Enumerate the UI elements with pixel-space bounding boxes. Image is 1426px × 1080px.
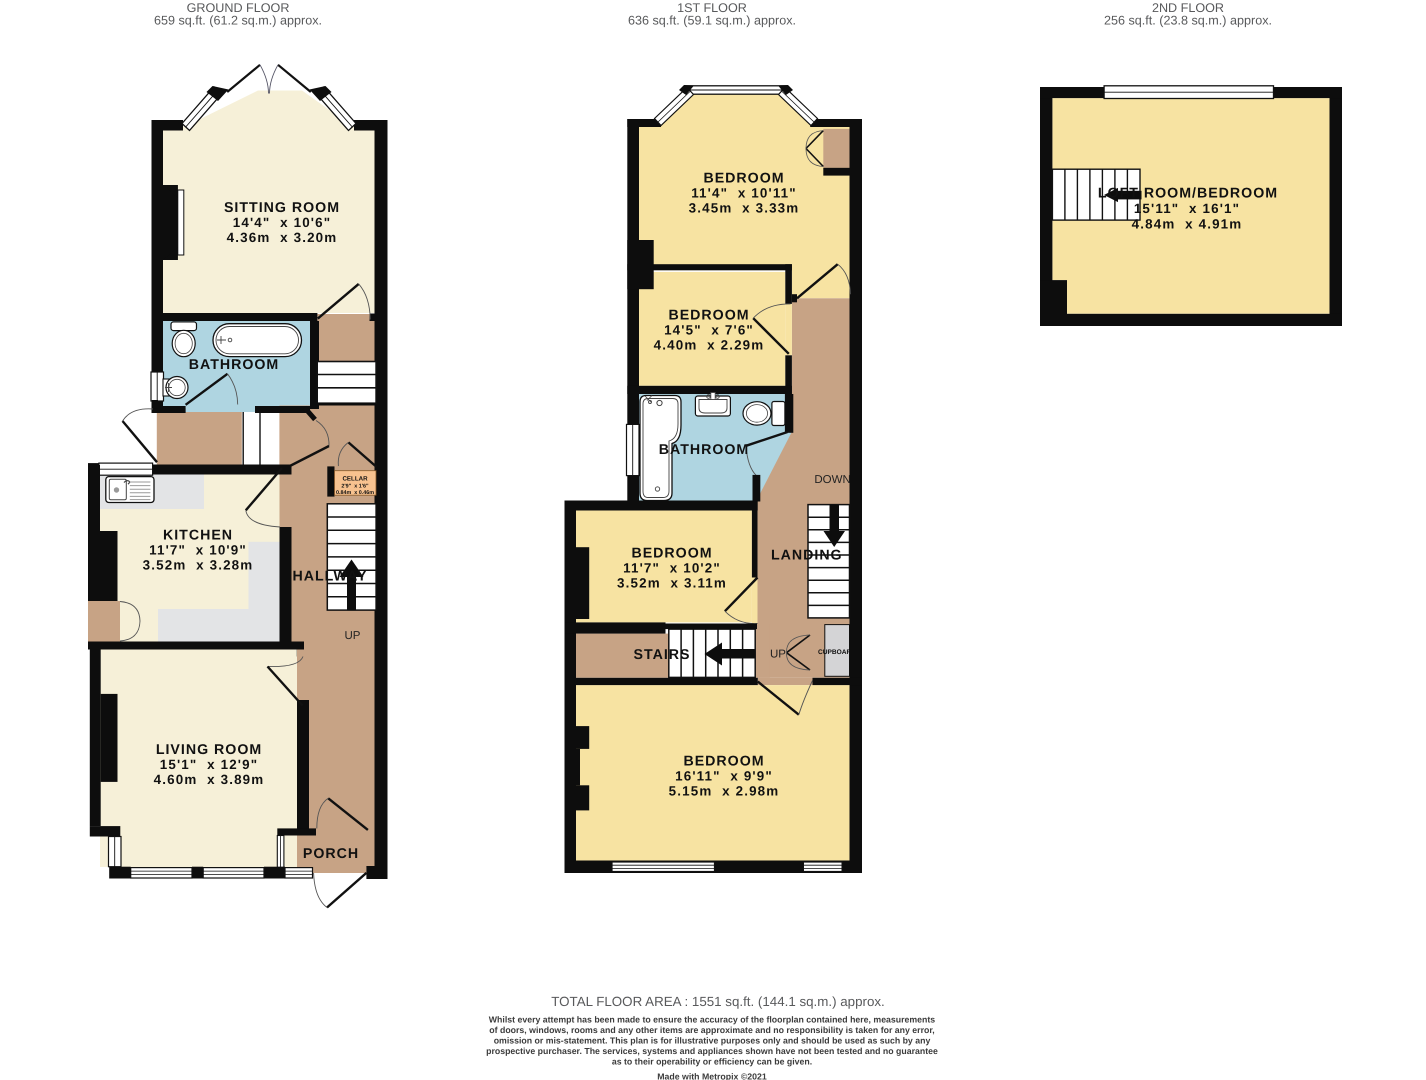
svg-text:14'4" x 10'6": 14'4" x 10'6" bbox=[233, 215, 331, 230]
svg-text:Whilst every attempt has been: Whilst every attempt has been made to en… bbox=[489, 1015, 936, 1025]
svg-text:11'7" x 10'2": 11'7" x 10'2" bbox=[623, 561, 721, 576]
svg-text:14'5" x 7'6": 14'5" x 7'6" bbox=[664, 323, 754, 338]
svg-text:636 sq.ft. (59.1 sq.m.) approx: 636 sq.ft. (59.1 sq.m.) approx. bbox=[628, 14, 796, 28]
svg-text:15'11" x 16'1": 15'11" x 16'1" bbox=[1134, 201, 1240, 216]
svg-text:SITTING ROOM: SITTING ROOM bbox=[224, 200, 340, 216]
svg-text:BEDROOM: BEDROOM bbox=[703, 171, 784, 187]
svg-text:5.15m x 2.98m: 5.15m x 2.98m bbox=[669, 784, 780, 799]
svg-text:3.45m x 3.33m: 3.45m x 3.33m bbox=[689, 201, 800, 216]
svg-text:UP: UP bbox=[770, 649, 786, 661]
svg-text:as to their operability or eff: as to their operability or efficiency ca… bbox=[612, 1057, 812, 1067]
svg-text:HALLWAY: HALLWAY bbox=[292, 569, 367, 585]
svg-text:BEDROOM: BEDROOM bbox=[631, 546, 712, 562]
svg-text:3.52m x 3.11m: 3.52m x 3.11m bbox=[617, 576, 727, 591]
svg-text:0.84m x 0.46m: 0.84m x 0.46m bbox=[336, 490, 374, 496]
svg-text:LANDING: LANDING bbox=[771, 548, 843, 564]
svg-text:of doors, windows, rooms and a: of doors, windows, rooms and any other i… bbox=[489, 1025, 934, 1035]
svg-text:4.36m x 3.20m: 4.36m x 3.20m bbox=[227, 230, 338, 245]
svg-text:BATHROOM: BATHROOM bbox=[189, 357, 280, 373]
svg-text:LIVING ROOM: LIVING ROOM bbox=[156, 742, 262, 758]
svg-text:2'9" x 1'6": 2'9" x 1'6" bbox=[341, 484, 369, 490]
svg-text:4.40m x 2.29m: 4.40m x 2.29m bbox=[654, 338, 765, 353]
svg-text:omission or mis-statement. Thi: omission or mis-statement. This plan is … bbox=[494, 1036, 931, 1046]
svg-text:4.60m x 3.89m: 4.60m x 3.89m bbox=[154, 772, 265, 787]
svg-text:4.84m x 4.91m: 4.84m x 4.91m bbox=[1132, 217, 1243, 232]
svg-text:STAIRS: STAIRS bbox=[634, 647, 691, 663]
svg-text:Made with Metropix ©2021: Made with Metropix ©2021 bbox=[657, 1072, 767, 1080]
svg-text:PORCH: PORCH bbox=[303, 846, 359, 862]
svg-text:16'11" x 9'9": 16'11" x 9'9" bbox=[675, 769, 773, 784]
svg-text:15'1" x 12'9": 15'1" x 12'9" bbox=[160, 757, 258, 772]
svg-text:LOFT ROOM/BEDROOM: LOFT ROOM/BEDROOM bbox=[1098, 186, 1278, 202]
svg-text:UP: UP bbox=[345, 630, 361, 642]
svg-text:KITCHEN: KITCHEN bbox=[163, 528, 233, 544]
svg-text:CELLAR: CELLAR bbox=[342, 476, 368, 483]
svg-text:11'4" x 10'11": 11'4" x 10'11" bbox=[691, 186, 797, 201]
svg-text:3.52m x 3.28m: 3.52m x 3.28m bbox=[143, 558, 254, 573]
svg-text:prospective purchaser. The ser: prospective purchaser. The services, sys… bbox=[486, 1046, 938, 1056]
svg-text:BEDROOM: BEDROOM bbox=[668, 308, 749, 324]
svg-text:BEDROOM: BEDROOM bbox=[683, 754, 764, 770]
svg-text:659 sq.ft. (61.2 sq.m.) approx: 659 sq.ft. (61.2 sq.m.) approx. bbox=[154, 14, 322, 28]
svg-text:BATHROOM: BATHROOM bbox=[659, 442, 750, 458]
svg-text:DOWN: DOWN bbox=[814, 474, 850, 486]
svg-text:TOTAL FLOOR AREA : 1551 sq.ft.: TOTAL FLOOR AREA : 1551 sq.ft. (144.1 sq… bbox=[551, 994, 885, 1009]
svg-text:11'7" x 10'9": 11'7" x 10'9" bbox=[149, 543, 247, 558]
svg-text:256 sq.ft. (23.8 sq.m.) approx: 256 sq.ft. (23.8 sq.m.) approx. bbox=[1104, 14, 1272, 28]
